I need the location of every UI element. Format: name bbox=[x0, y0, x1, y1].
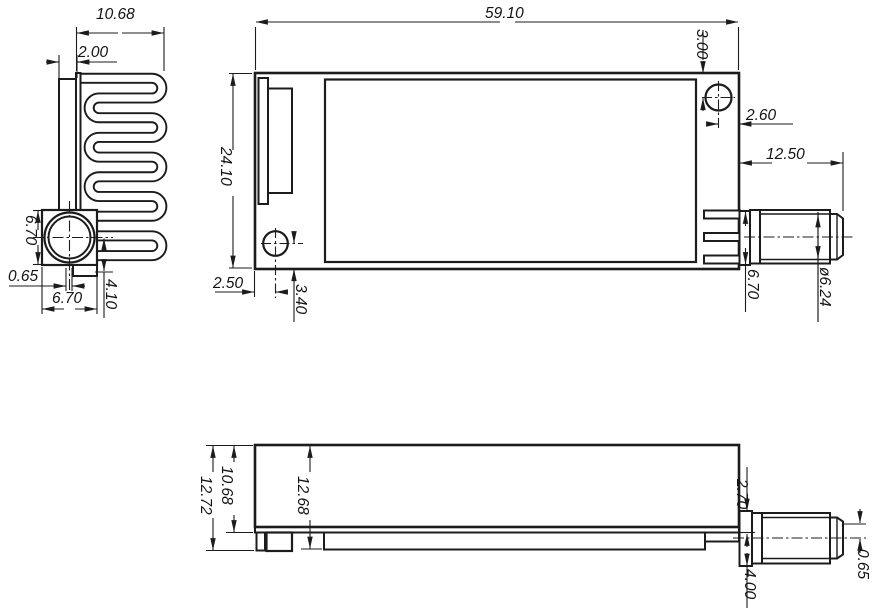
dim-label-hole-top: 3.00 bbox=[693, 29, 710, 60]
dim-label-board-height: 12.68 bbox=[294, 476, 311, 515]
dim-label-overall-length: 59.10 bbox=[485, 5, 524, 22]
module-body bbox=[255, 73, 739, 269]
dim-label-connector-offset: 2.70 bbox=[733, 478, 750, 510]
front-body bbox=[255, 445, 739, 527]
dim-label-edge-offset: 0.65 bbox=[8, 268, 39, 285]
dim-label-plate-thickness: 2.00 bbox=[77, 44, 109, 61]
dim-label-pin-offset: 0.65 bbox=[854, 549, 871, 580]
dim-label-flange-width: 6.70 bbox=[744, 269, 761, 300]
dim-label-overall-height: 12.72 bbox=[197, 476, 214, 515]
block-bottom-tab bbox=[73, 265, 97, 276]
dim-label-connector-height: 4.00 bbox=[741, 569, 758, 600]
sma-pins bbox=[704, 211, 740, 264]
dim-label-body-height: 10.68 bbox=[218, 466, 235, 505]
dim-label-fin-width: 10.68 bbox=[96, 6, 135, 23]
dim-label-hole-left: 2.50 bbox=[212, 275, 244, 292]
dim-label-block-height: 6.70 bbox=[22, 215, 39, 246]
dim-label-overall-width: 24.10 bbox=[217, 146, 234, 186]
dim-label-block-width: 6.70 bbox=[52, 290, 83, 307]
dim-label-thread-diameter: ø6.24 bbox=[816, 267, 833, 307]
dim-label-hole-bottom: 3.40 bbox=[292, 284, 309, 315]
drawing-sheet: 10.68 2.00 6.70 0.65 6.70 4.10 59.10 24.… bbox=[0, 0, 876, 614]
dim-label-center-to-base: 4.10 bbox=[102, 279, 119, 310]
dim-label-connector-length: 12.50 bbox=[766, 146, 805, 163]
dim-label-hole-right: 2.60 bbox=[745, 107, 777, 124]
technical-drawing: 10.68 2.00 6.70 0.65 6.70 4.10 59.10 24.… bbox=[0, 0, 876, 614]
sma-flange bbox=[740, 211, 751, 265]
